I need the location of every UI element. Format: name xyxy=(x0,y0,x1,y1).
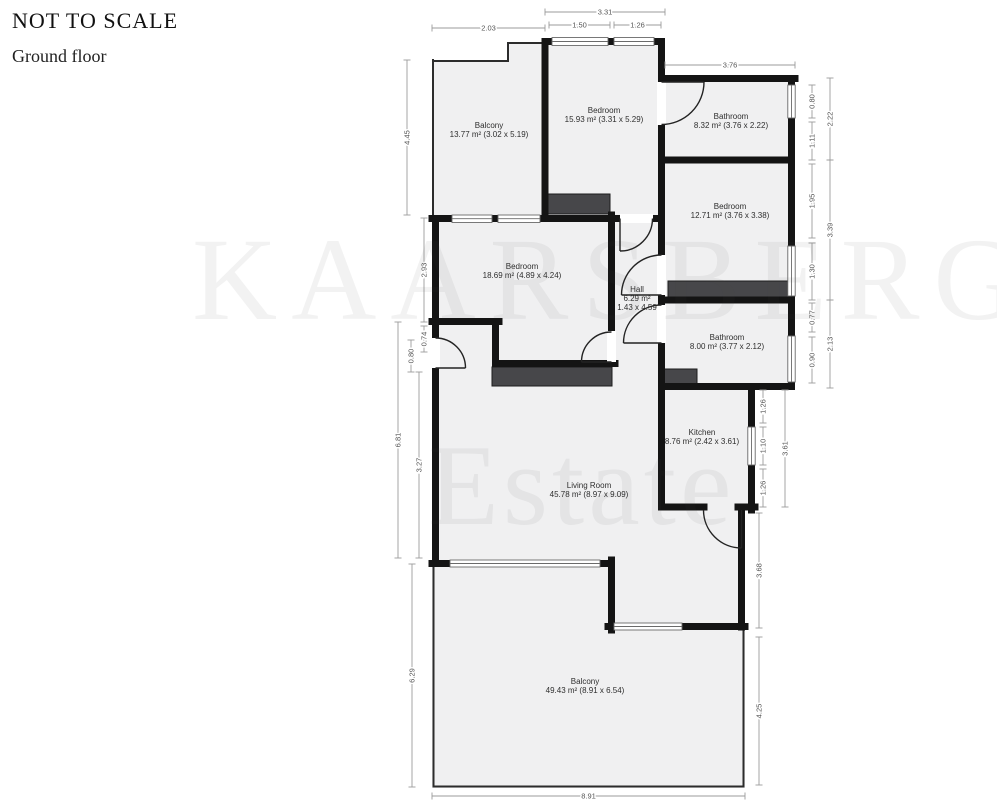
dimension-label: 6.81 xyxy=(394,433,403,448)
dimension-v: 1.11 xyxy=(808,122,817,160)
dimension-label: 1.26 xyxy=(759,399,768,414)
dimension-label: 6.29 xyxy=(408,668,417,683)
dimension-v: 6.81 xyxy=(394,322,403,558)
dimension-v: 1.95 xyxy=(808,164,817,238)
dimension-v: 2.13 xyxy=(826,300,835,388)
dimension-label: 1.30 xyxy=(808,264,817,279)
dimension-h: 1.50 xyxy=(549,21,610,30)
dimension-h: 8.91 xyxy=(432,792,745,801)
room-fills xyxy=(432,38,795,788)
wardrobe-block xyxy=(548,194,610,214)
dimension-label: 2.22 xyxy=(826,112,835,127)
dimension-label: 4.45 xyxy=(403,130,412,145)
dimension-v: 3.61 xyxy=(781,390,790,507)
dimension-v: 0.77 xyxy=(808,303,817,332)
dimension-v: 1.26 xyxy=(759,390,768,423)
header: NOT TO SCALE Ground floor xyxy=(12,8,178,67)
dimension-h: 2.03 xyxy=(432,24,545,33)
dimension-v: 2.93 xyxy=(420,218,429,322)
dimension-h: 1.26 xyxy=(614,21,661,30)
dimension-label: 3.27 xyxy=(415,458,424,473)
dimension-label: 3.68 xyxy=(755,563,764,578)
dimension-v: 1.26 xyxy=(759,469,768,507)
dimension-v: 6.29 xyxy=(408,564,417,787)
dimension-v: 3.68 xyxy=(755,513,764,628)
dimension-label: 1.10 xyxy=(759,439,768,454)
dimension-label: 0.74 xyxy=(420,332,429,347)
dimension-label: 3.61 xyxy=(781,441,790,456)
floor-label: Ground floor xyxy=(12,46,178,67)
dimension-h: 3.31 xyxy=(545,8,665,17)
wardrobe-block xyxy=(668,281,790,299)
not-to-scale-label: NOT TO SCALE xyxy=(12,8,178,34)
dimension-label: 2.13 xyxy=(826,337,835,352)
dimension-label: 1.26 xyxy=(630,21,645,30)
dimension-label: 0.77 xyxy=(808,310,817,325)
dimension-v: 2.22 xyxy=(826,78,835,160)
dimension-v: 3.27 xyxy=(415,372,424,558)
wardrobe-block xyxy=(492,367,612,386)
dimension-label: 2.93 xyxy=(420,263,429,278)
dimension-label: 1.11 xyxy=(808,134,817,148)
dimension-v: 4.25 xyxy=(755,637,764,785)
floorplan-svg: Balcony13.77 m² (3.02 x 5.19)Bedroom15.9… xyxy=(0,0,997,810)
dimension-v: 0.80 xyxy=(407,340,416,372)
dimension-h: 3.76 xyxy=(665,61,795,70)
dimension-v: 0.74 xyxy=(420,326,429,352)
dimension-label: 8.91 xyxy=(581,792,596,801)
dimension-v: 3.39 xyxy=(826,160,835,300)
dimension-label: 3.31 xyxy=(598,8,613,17)
dimension-v: 1.10 xyxy=(759,427,768,465)
dimension-label: 3.76 xyxy=(723,61,738,70)
dimension-v: 0.90 xyxy=(808,337,817,383)
dimension-label: 1.26 xyxy=(759,481,768,496)
dimension-v: 1.30 xyxy=(808,243,817,300)
dimension-label: 4.25 xyxy=(755,704,764,719)
dimension-label: 0.80 xyxy=(407,349,416,364)
dimension-label: 0.80 xyxy=(808,94,817,109)
dimension-label: 2.03 xyxy=(481,24,496,33)
dimension-label: 1.95 xyxy=(808,194,817,209)
dimension-v: 4.45 xyxy=(403,60,412,215)
floor-plan-page: Balcony13.77 m² (3.02 x 5.19)Bedroom15.9… xyxy=(0,0,997,810)
dimension-label: 3.39 xyxy=(826,223,835,238)
dimension-v: 0.80 xyxy=(808,85,817,118)
dimension-label: 0.90 xyxy=(808,353,817,368)
dimension-label: 1.50 xyxy=(572,21,587,30)
